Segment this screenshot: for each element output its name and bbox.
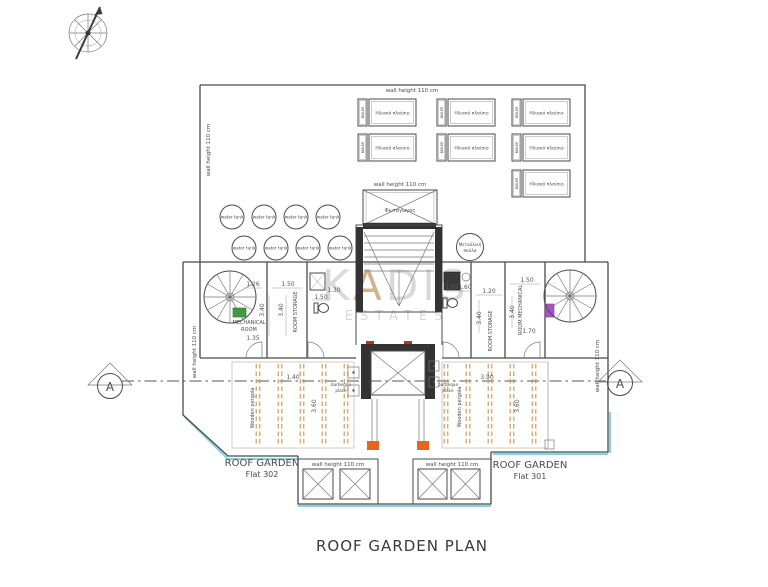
boiler-label: BOILER xyxy=(440,141,444,153)
skylight-group-left: wall height 110 cm xyxy=(298,459,378,504)
orange-marker xyxy=(367,441,379,450)
water-tank-label: water tank xyxy=(285,215,308,220)
watermark-k: K xyxy=(322,261,354,310)
room-storage-left-label: ROOM STORAGE xyxy=(293,291,299,332)
skylight-group-right: wall height 110 cm xyxy=(413,459,491,504)
wooden-pergola-right-label: Wooden pergola xyxy=(457,387,463,428)
barbeque-left-label-1: barbeque xyxy=(331,382,351,387)
light-well: wall height 110 cm Φωταγωγός xyxy=(363,182,437,225)
spiral-stair-left xyxy=(204,271,256,323)
dim-3-40: 3.40 xyxy=(259,303,266,317)
barbeque-right-label-1: barbeque xyxy=(438,382,458,387)
solar-panel-label: Ηλιακό πλαίσιο xyxy=(529,110,564,117)
water-tank-group: water tank water tank water tank water t… xyxy=(220,205,352,260)
solar-panel-unit: BOILER Ηλιακό πλαίσιο xyxy=(512,134,570,161)
water-tank: water tank xyxy=(232,236,256,260)
water-tank: water tank xyxy=(316,205,340,229)
dim-1-70: 1.70 xyxy=(522,328,536,335)
solar-panel-label: Ηλιακό πλαίσιο xyxy=(529,145,564,152)
water-tank: water tank xyxy=(296,236,320,260)
mechanical-room-label-1: MECHANICAL xyxy=(232,320,265,326)
elevator-shaft xyxy=(361,341,435,450)
water-tank-label: water tank xyxy=(329,246,352,251)
wall-height-label-left-mid: wall height 110 cm xyxy=(192,326,198,379)
spiral-stair-right xyxy=(544,270,596,322)
water-tank: water tank xyxy=(328,236,352,260)
solar-panel-unit: BOILER Ηλιακό πλαίσιο xyxy=(512,99,570,126)
water-tank-label: water tank xyxy=(221,215,244,220)
door-arc xyxy=(308,342,324,358)
pergola-lines-left xyxy=(256,364,348,446)
floor-plan-drawing: K A DIS ESTATES wall height 110 cm wall … xyxy=(0,0,768,587)
boiler-label: BOILER xyxy=(440,106,444,118)
solar-panel-unit: BOILER Ηλιακό πλαίσιο xyxy=(512,170,570,197)
barbeque-left-label-2: place xyxy=(335,388,347,393)
boiler-label: BOILER xyxy=(515,177,519,189)
solar-panel-label: Ηλιακό πλαίσιο xyxy=(375,145,410,152)
roof-garden-302-label: ROOF GARDEN xyxy=(225,458,300,469)
roof-garden-301-label: ROOF GARDEN xyxy=(493,460,568,471)
barbeque-right-label-2: place xyxy=(442,388,454,393)
solar-panel-label: Ηλιακό πλαίσιο xyxy=(375,110,410,117)
door-arc xyxy=(524,342,540,358)
door-marker-green xyxy=(233,308,246,317)
red-tick xyxy=(404,341,412,344)
solar-panel-unit: BOILER Ηλιακό πλαίσιο xyxy=(437,99,495,126)
section-marker-left-letter: A xyxy=(106,380,115,394)
water-tank: water tank xyxy=(252,205,276,229)
dim-1-50: 1.50 xyxy=(314,294,328,301)
dim-1-60: 1.60 xyxy=(458,284,472,291)
watermark: K A DIS ESTATES xyxy=(322,261,469,324)
dim-1-30: 1.30 xyxy=(327,287,341,294)
orange-marker xyxy=(417,441,429,450)
water-tank-label: water tank xyxy=(253,215,276,220)
wooden-pergola-left-label: Wooden pergola xyxy=(250,388,256,429)
boiler-label: BOILER xyxy=(515,141,519,153)
corner-box xyxy=(545,440,554,449)
dim-3-90: 3.90 xyxy=(480,374,494,381)
door-arc xyxy=(246,342,262,358)
section-marker-right-letter: A xyxy=(616,377,625,391)
boiler-label: BOILER xyxy=(361,141,365,153)
metal-stair-symbol: Μεταλλική σκάλα xyxy=(457,234,484,261)
metal-stair-label-1: Μεταλλική xyxy=(459,242,482,247)
dim-1-65: 1.65 xyxy=(445,284,459,291)
dim-1-50: 1.50 xyxy=(281,281,295,288)
solar-panel-unit: BOILER Ηλιακό πλαίσιο xyxy=(358,134,416,161)
water-tank: water tank xyxy=(220,205,244,229)
water-tank: water tank xyxy=(284,205,308,229)
solar-panel-label: Ηλιακό πλαίσιο xyxy=(454,145,489,152)
wall-height-label-skylight-right: wall height 110 cm xyxy=(426,462,479,468)
water-tank-label: water tank xyxy=(265,246,288,251)
dim-1-35: 1.35 xyxy=(246,335,260,342)
solar-panel-label: Ηλιακό πλαίσιο xyxy=(454,110,489,117)
metal-stair-label-2: σκάλα xyxy=(463,248,476,253)
wall-height-label-lightwell: wall height 110 cm xyxy=(374,182,427,188)
section-marker-right: A xyxy=(598,360,642,396)
page-title: ROOF GARDEN PLAN xyxy=(316,537,488,555)
dim-1-40: 1.40 xyxy=(286,374,300,381)
boiler-label: BOILER xyxy=(515,106,519,118)
water-tank-label: water tank xyxy=(317,215,340,220)
wall-height-label-top: wall height 110 cm xyxy=(386,88,439,94)
compass-rose-icon xyxy=(69,7,107,59)
roof-garden-302-flat: Flat 302 xyxy=(246,470,279,479)
red-tick xyxy=(366,341,374,344)
room-storage-right-label: ROOM STORAGE xyxy=(488,310,494,351)
solar-panel-unit: BOILER Ηλιακό πλαίσιο xyxy=(358,99,416,126)
wall-height-label-left-top: wall height 110 cm xyxy=(206,124,212,177)
water-tank-label: water tank xyxy=(297,246,320,251)
door-arc xyxy=(443,342,459,358)
boiler-label: BOILER xyxy=(361,106,365,118)
light-well-label: Φωταγωγός xyxy=(385,207,416,214)
wall-height-label-right: wall height 110 cm xyxy=(595,340,601,393)
dim-3-60: 3.60 xyxy=(514,399,521,413)
mechanical-room-label-2: ROOM xyxy=(241,327,257,333)
dim-1-26: 1.26 xyxy=(246,281,260,288)
dim-3-40: 3.40 xyxy=(278,303,285,317)
roof-garden-plan-canvas: K A DIS ESTATES wall height 110 cm wall … xyxy=(0,0,768,587)
solar-panel-unit: BOILER Ηλιακό πλαίσιο xyxy=(437,134,495,161)
water-tank-label: water tank xyxy=(233,246,256,251)
dim-3-40: 3.40 xyxy=(509,305,516,319)
dim-1-20: 1.20 xyxy=(482,288,496,295)
solar-panel-label: Ηλιακό πλαίσιο xyxy=(529,181,564,188)
dim-3-40: 3.40 xyxy=(476,311,483,325)
dim-3-60: 3.60 xyxy=(311,399,318,413)
roof-garden-301-flat: Flat 301 xyxy=(514,472,547,481)
water-tank: water tank xyxy=(264,236,288,260)
wall-height-label-skylight-left: wall height 110 cm xyxy=(312,462,365,468)
dim-1-50: 1.50 xyxy=(520,277,534,284)
